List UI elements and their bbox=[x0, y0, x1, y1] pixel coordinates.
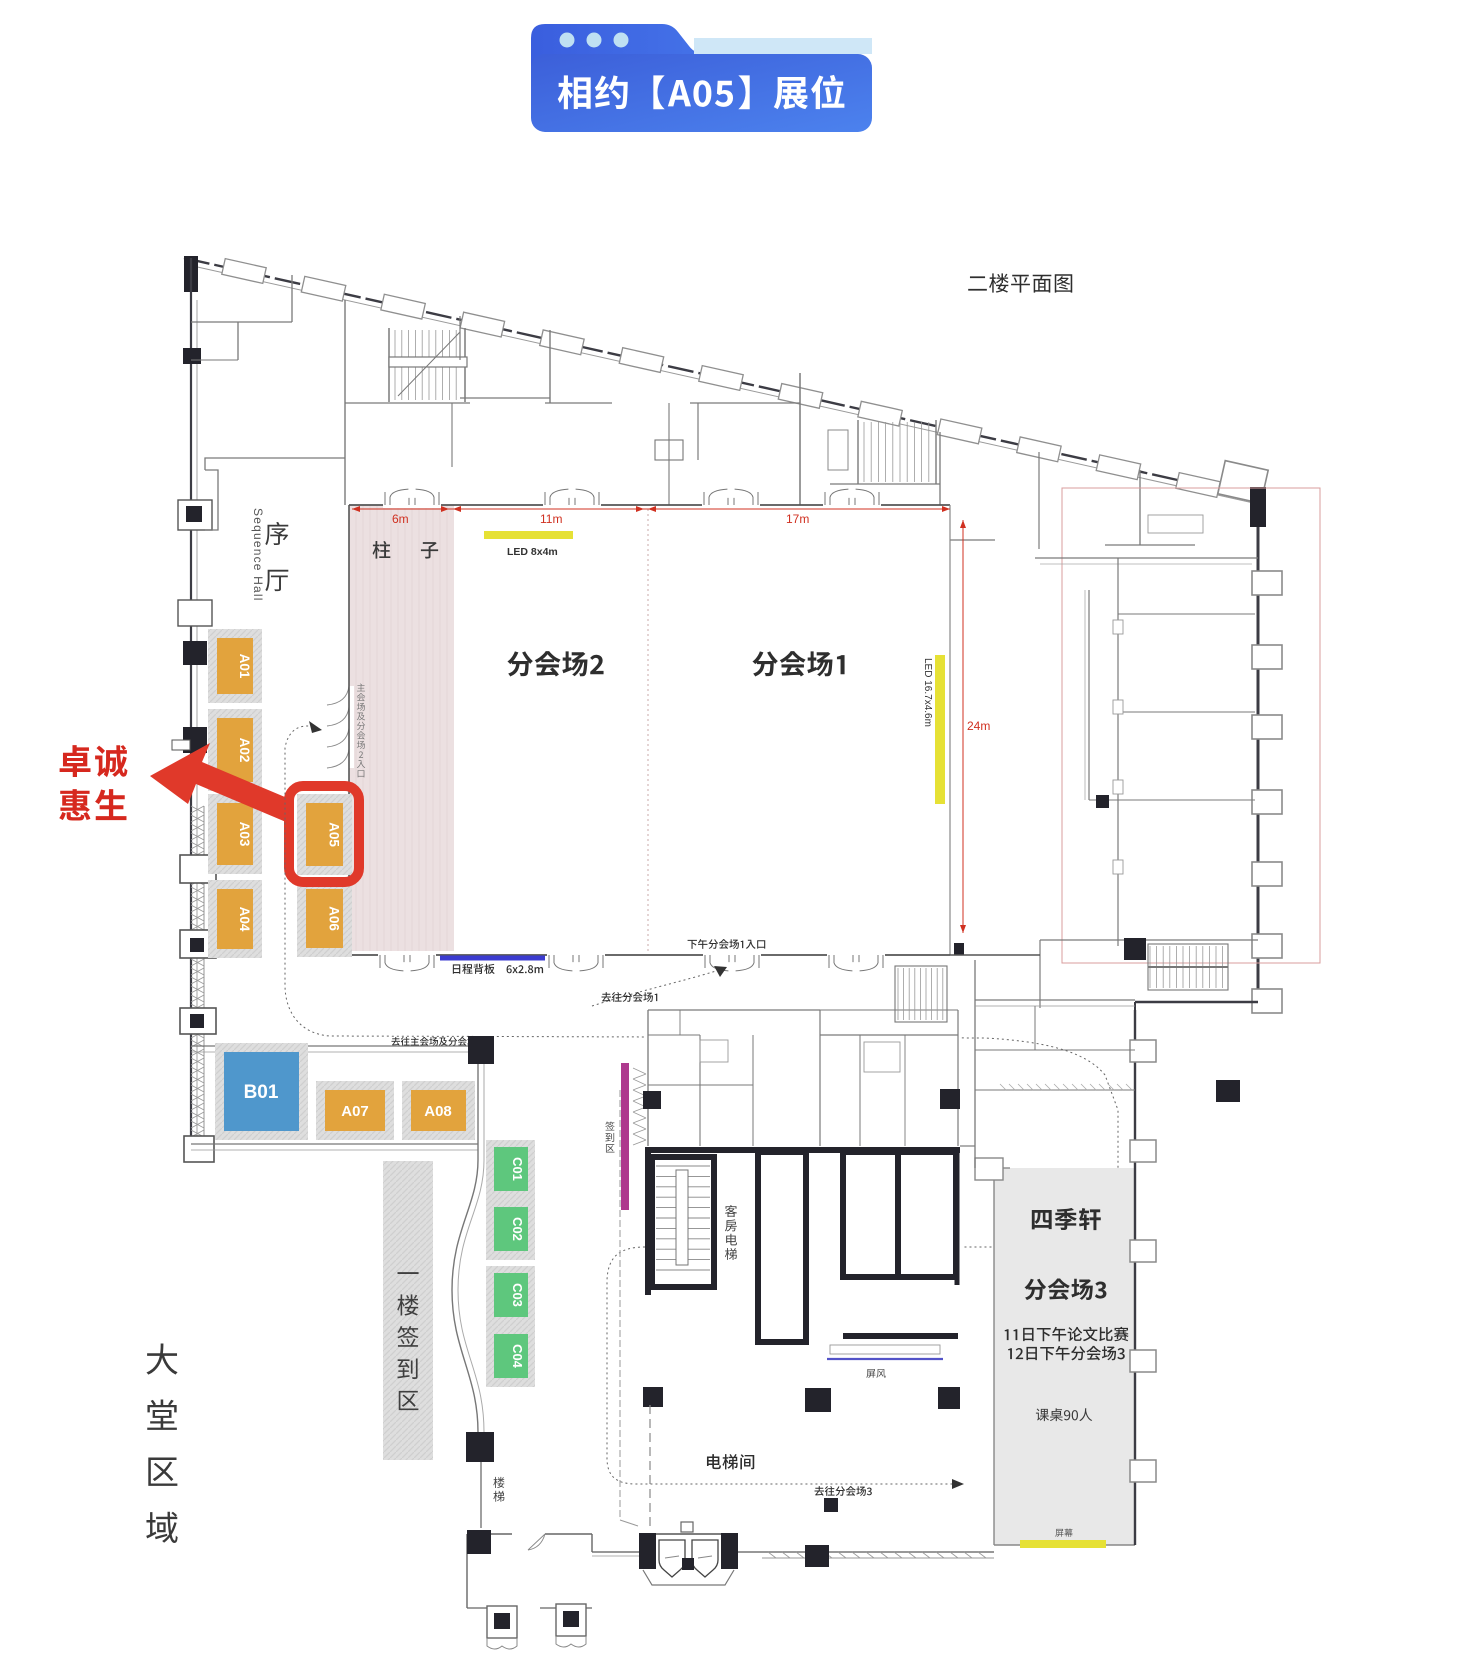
svg-text:A06: A06 bbox=[327, 906, 342, 931]
svg-text:A05: A05 bbox=[327, 822, 342, 847]
svg-text:LED 16.7x4.6m: LED 16.7x4.6m bbox=[922, 658, 933, 727]
svg-text:6m: 6m bbox=[392, 512, 409, 526]
svg-text:B01: B01 bbox=[244, 1082, 279, 1103]
svg-text:24m: 24m bbox=[967, 719, 990, 733]
svg-text:A02: A02 bbox=[237, 738, 252, 763]
svg-text:A03: A03 bbox=[237, 822, 252, 847]
svg-text:A04: A04 bbox=[237, 907, 252, 932]
svg-text:A01: A01 bbox=[237, 654, 252, 679]
svg-text:17m: 17m bbox=[786, 512, 809, 526]
svg-text:A08: A08 bbox=[424, 1103, 452, 1120]
svg-text:C02: C02 bbox=[510, 1217, 525, 1241]
svg-text:C04: C04 bbox=[510, 1344, 525, 1369]
svg-text:Sequence Hall: Sequence Hall bbox=[251, 508, 265, 602]
svg-text:C03: C03 bbox=[510, 1283, 525, 1307]
svg-text:C01: C01 bbox=[510, 1157, 525, 1181]
svg-text:11m: 11m bbox=[540, 512, 562, 526]
svg-text:LED 8x4m: LED 8x4m bbox=[507, 546, 558, 558]
svg-text:A07: A07 bbox=[341, 1103, 369, 1120]
